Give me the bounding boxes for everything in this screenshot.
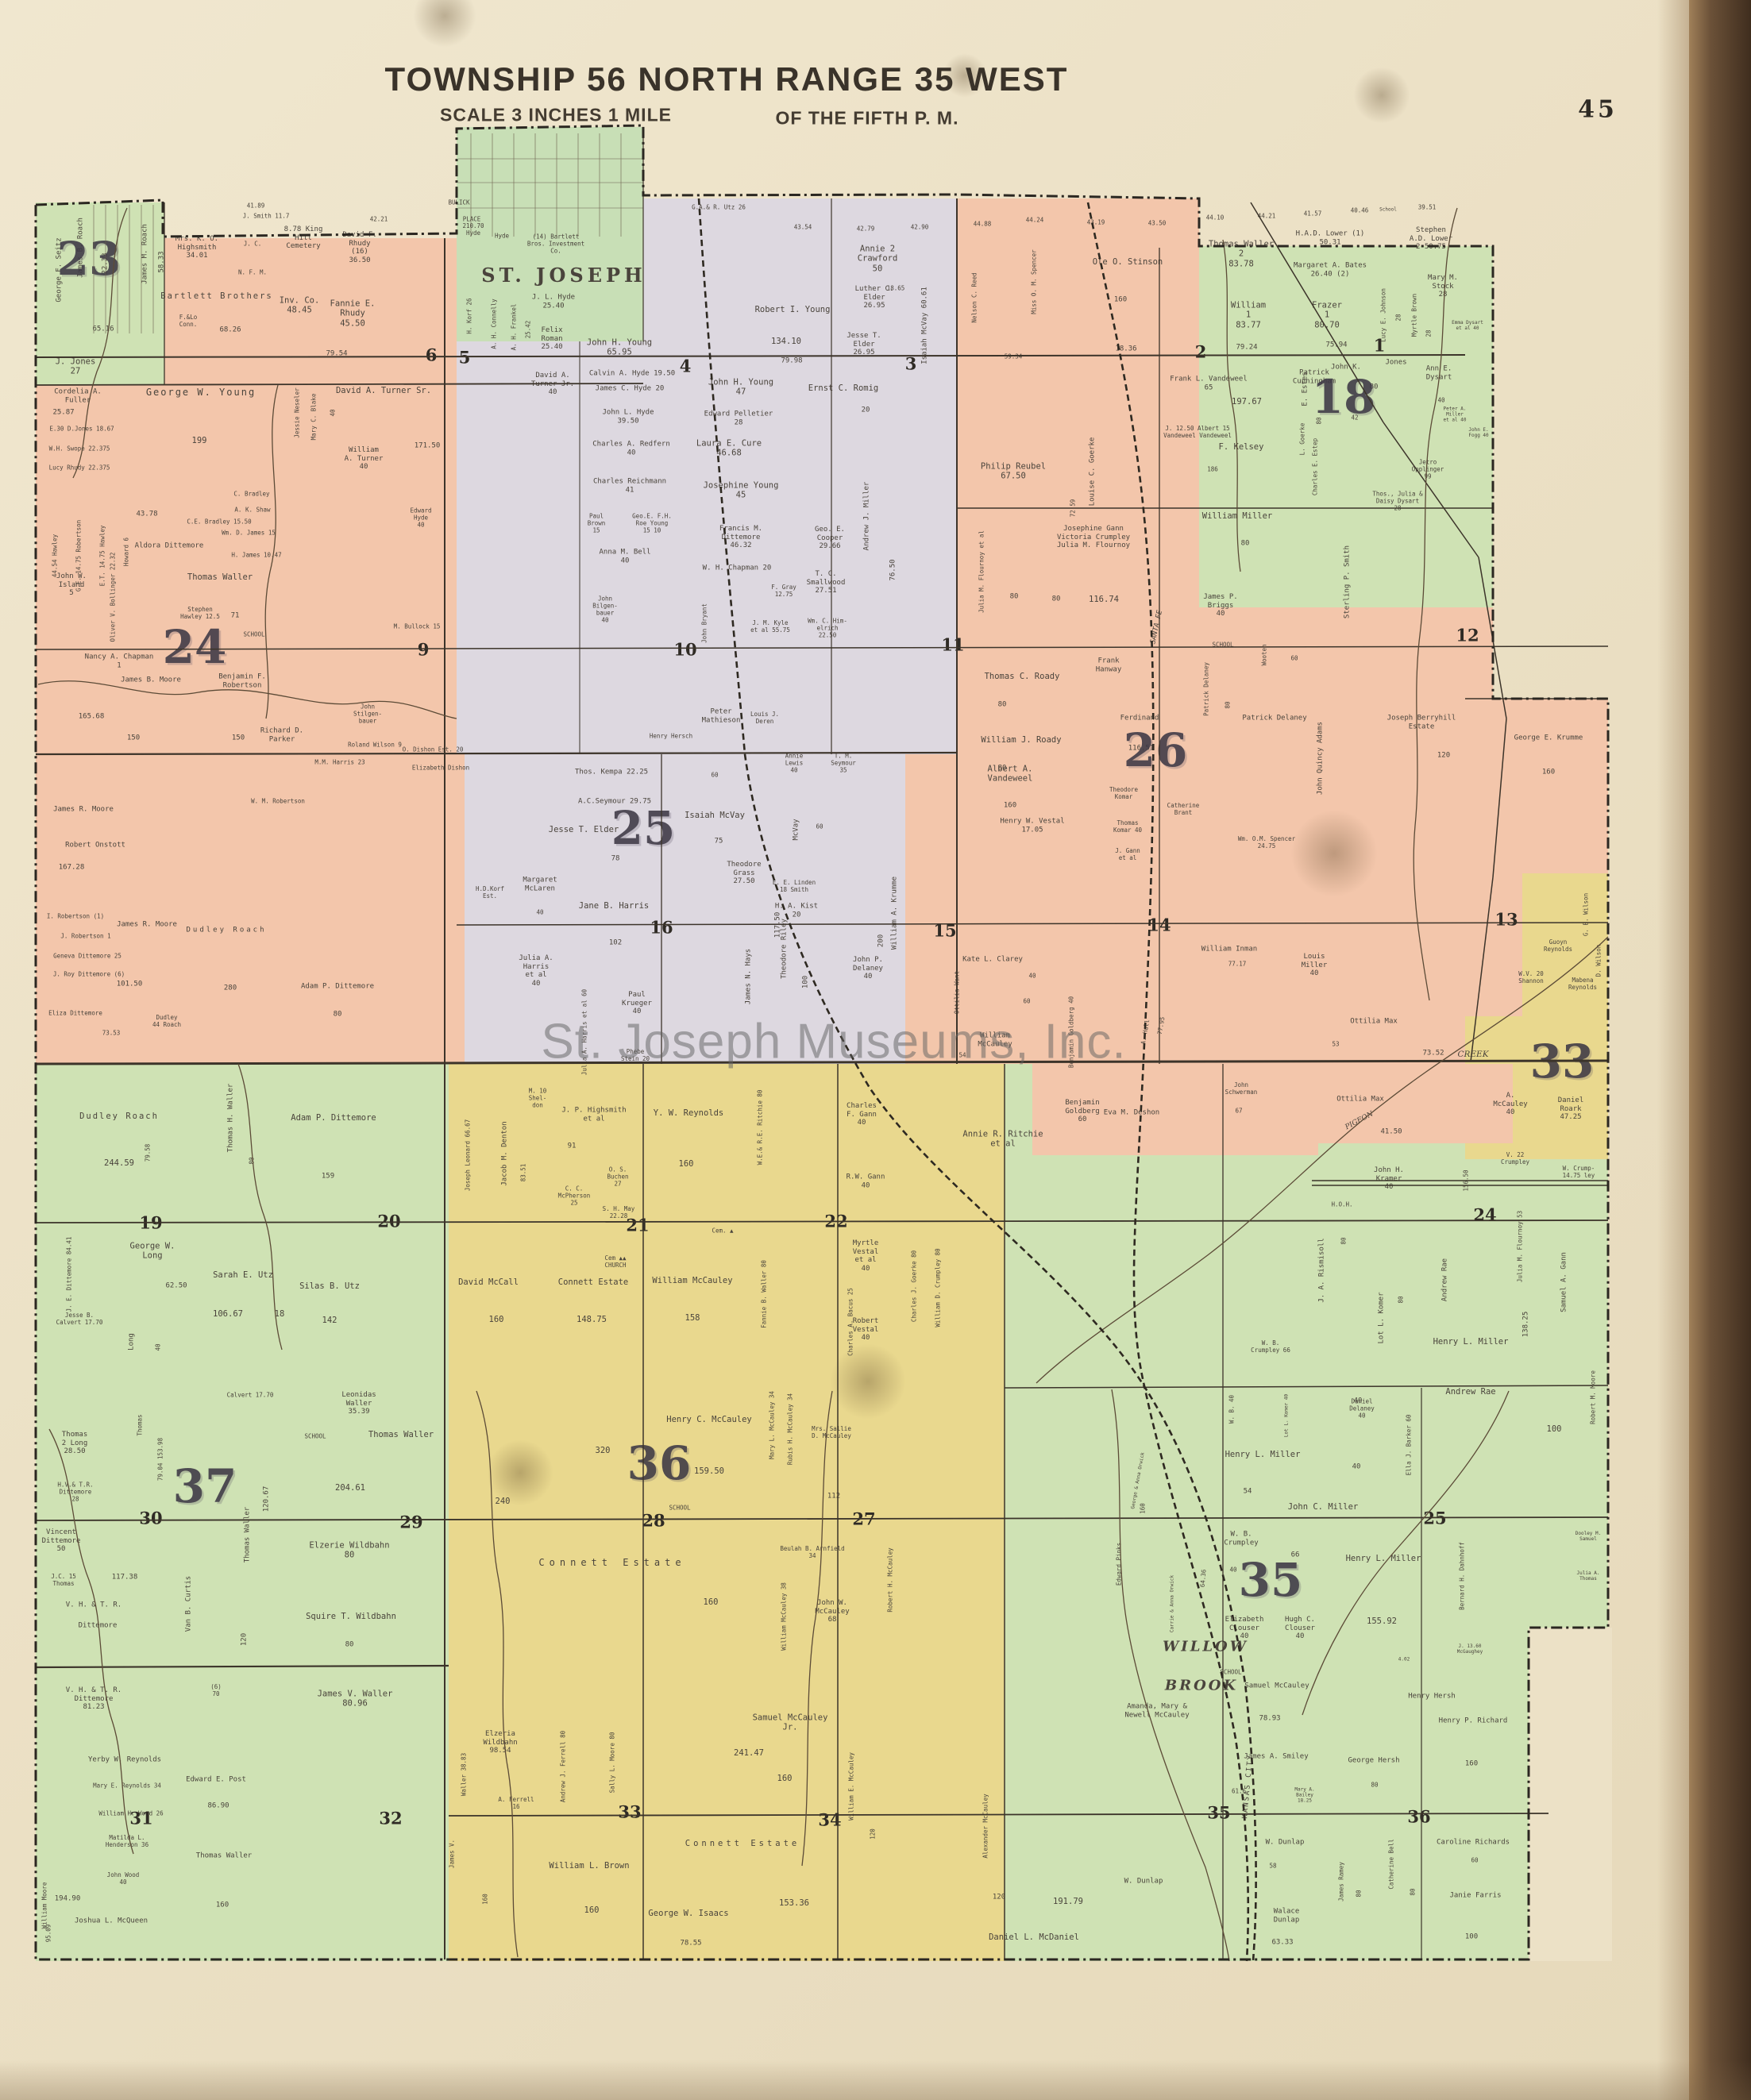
parcel-label: Henry P. Richard (1439, 1717, 1508, 1726)
parcel-label: 160 (1114, 296, 1127, 305)
parcel-label: 59.34 (1005, 354, 1023, 361)
parcel-label: Daniel L. McDaniel (989, 1932, 1079, 1942)
parcel-label: (14) Bartlett Bros. Investment Co. (527, 234, 584, 256)
parcel-label: John P. Delaney 40 (853, 956, 883, 981)
section-corner-number: 12 (1456, 626, 1479, 645)
parcel-label: Charles A. Bacus 25 (848, 1288, 855, 1356)
section-number-large: 24 (163, 620, 227, 674)
parcel-label: 80 (249, 1157, 256, 1164)
parcel-label: Henry L. Miller (1225, 1450, 1301, 1459)
parcel-label: John Schwerman (1225, 1082, 1258, 1096)
parcel-label: Aldora Dittemore (135, 542, 204, 551)
parcel-label: 120 (870, 1828, 877, 1840)
parcel-label: John Quincy Adams (1317, 722, 1325, 795)
parcel-label: H. Korf 26 (467, 298, 474, 333)
parcel-label: Daniel Roark 47.25 (1558, 1096, 1584, 1122)
watermark: St. Joseph Museums, Inc. (541, 1014, 1126, 1070)
parcel-label: 54 (1244, 1488, 1252, 1497)
parcel-label: Henry Hersch (650, 734, 692, 741)
parcel-label: David A. Turner Sr. (336, 386, 431, 395)
parcel-label: J. 13.60 McGaughey (1457, 1643, 1483, 1655)
parcel-label: J. Jones 27 (56, 357, 96, 377)
parcel-label: John Stilgen- bauer (353, 704, 382, 726)
parcel-label: 102 (609, 939, 622, 948)
parcel-label: Emma Dysart et al 40 (1452, 320, 1483, 331)
parcel-label: Roland Wilson 9 (348, 742, 402, 749)
parcel-label: H.O.H. (1331, 1202, 1352, 1209)
parcel-label: J. Robertson 1 (60, 934, 110, 941)
parcel-label: 80 (1371, 1782, 1378, 1790)
section-corner-number: 28 (642, 1511, 665, 1531)
parcel-label: A. Ferrell 16 (498, 1797, 534, 1811)
parcel-label: 101.50 (117, 981, 143, 989)
map-scale-label: SCALE 3 INCHES 1 MILE (440, 105, 672, 126)
parcel-label: John Bryant (702, 603, 709, 643)
parcel-label: Thomas (137, 1414, 145, 1435)
parcel-label: Lucy E. Johnson (1381, 288, 1388, 342)
parcel-label: Geneva Dittemore 25 (53, 954, 121, 961)
page-number: 45 (1578, 96, 1618, 124)
parcel-label: J. M. Kyle et al 55.75 (750, 620, 790, 634)
parcel-label: Louise C. Goerke (1089, 437, 1097, 507)
parcel-label: Caroline Richards (1437, 1839, 1510, 1848)
parcel-label: J. Gann et al (1115, 848, 1140, 862)
parcel-label: Paul Brown 15 (588, 514, 606, 535)
parcel-label: BULICK (448, 200, 469, 207)
parcel-label: 200 (877, 934, 886, 947)
section-corner-number: 24 (1473, 1205, 1496, 1225)
parcel-label: 83.51 (521, 1164, 528, 1182)
parcel-label: 44.88 (974, 222, 992, 229)
section-number-large: 23 (57, 232, 121, 286)
parcel-label: Thomas C. Roady (985, 672, 1060, 681)
parcel-label: Isaiah McVay (685, 811, 745, 820)
parcel-label: Wm. O.M. Spencer 24.75 (1238, 836, 1295, 850)
parcel-label: 79.58 (145, 1144, 152, 1162)
parcel-label: Mrs. K. O. Highsmith 34.01 (175, 235, 218, 260)
parcel-label: 78.93 (1259, 1715, 1280, 1724)
parcel-label: Miss O. M. Spencer (1032, 249, 1039, 314)
parcel-label: 60 (816, 824, 823, 831)
parcel-label: 80 (1356, 1890, 1363, 1897)
parcel-label: 160 (1004, 802, 1016, 811)
section-corner-number: 11 (941, 635, 964, 655)
parcel-label: Ottilia Max (1336, 1096, 1384, 1104)
parcel-label: SCHOOL (1212, 642, 1233, 649)
section-number-large: 33 (1530, 1035, 1595, 1089)
parcel-label: Andrew J. Ferrell 80 (561, 1731, 568, 1802)
parcel-label: 40 (536, 910, 543, 917)
parcel-label: Louis Miller 40 (1302, 953, 1328, 978)
parcel-label: Edward Pelletier 28 (704, 410, 773, 426)
parcel-label: 79.04 153.98 (158, 1438, 165, 1481)
parcel-label: James R. Moore (117, 921, 177, 930)
parcel-label: Theodore Grass 27.50 (727, 861, 761, 886)
parcel-label: 156.50 (1464, 1169, 1471, 1191)
parcel-label: 40 (1352, 1463, 1361, 1472)
parcel-label: Dudley 44 Roach (152, 1015, 181, 1029)
parcel-label: WILLOW (1163, 1638, 1248, 1655)
parcel-label: 44.54 Hawley (52, 534, 60, 577)
parcel-label: Annie R. Ritchie et al (962, 1130, 1043, 1150)
parcel-label: John E. Fogg 40 (1468, 427, 1488, 438)
parcel-label: George W. Isaacs (648, 1909, 728, 1918)
parcel-label: Wm. D. James 15 (222, 530, 276, 538)
parcel-label: J. 12.50 Albert 15 Vandeweel Vandeweel (1163, 426, 1232, 440)
parcel-label: 241.47 (734, 1748, 764, 1758)
parcel-label: C.E. Bradley 15.50 (187, 519, 251, 526)
parcel-label: Julia M. Flournoy et al (979, 530, 986, 613)
parcel-label: 40.46 (1351, 208, 1369, 215)
parcel-label: Nelson C. Reed (972, 272, 979, 322)
parcel-label: Catherine Bell (1389, 1839, 1396, 1889)
parcel-label: 44.21 (1258, 214, 1276, 221)
parcel-label: Elzerie Wildbahn 80 (309, 1541, 389, 1561)
parcel-label: Jane B. Harris (579, 901, 650, 911)
parcel-label: 77.17 (1228, 961, 1247, 969)
parcel-label: 44.24 (1026, 218, 1044, 225)
parcel-label: William L. Brown (549, 1861, 629, 1871)
parcel-label: 63.33 (1271, 1939, 1293, 1948)
parcel-label: 40 (156, 1343, 163, 1351)
parcel-label: 167.28 (59, 864, 85, 873)
parcel-label: Lot L. Komer 40 (1283, 1394, 1289, 1437)
parcel-label: James N. Hays (745, 949, 754, 1004)
parcel-label: T. C. Smallwood 27.51 (807, 570, 846, 595)
section-corner-number: 27 (852, 1509, 875, 1529)
parcel-label: W.V. 20 Shannon (1518, 971, 1544, 985)
parcel-label: Jesse T. Elder (549, 825, 619, 834)
parcel-label: 39.51 (1418, 205, 1437, 212)
parcel-label: Van B. Curtis (185, 1576, 194, 1632)
parcel-label: George E. Krumme (1514, 734, 1583, 743)
parcel-label: Charles A. Redfern 40 (592, 440, 670, 457)
parcel-label: 25.87 (52, 409, 74, 418)
parcel-label: Ottilia Want (955, 971, 962, 1014)
section-corner-number: 15 (933, 921, 956, 941)
parcel-label: 160 (1465, 1760, 1478, 1769)
section-corner-number: 4 (680, 356, 692, 376)
parcel-label: O. Dishon Est. 20 (403, 747, 464, 754)
parcel-label: Henry C. McCauley (666, 1415, 751, 1424)
parcel-label: Richard D. Parker (260, 726, 303, 743)
parcel-label: 199 (192, 436, 207, 445)
parcel-label: Andrew J. Miller (863, 482, 872, 551)
parcel-label: Robert M. Moore (1591, 1370, 1598, 1424)
parcel-label: 73.53 (102, 1031, 121, 1038)
parcel-label: 116.74 (1089, 595, 1119, 604)
parcel-label: 86.90 (207, 1802, 229, 1811)
parcel-label: A. McCauley 40 (1493, 1092, 1527, 1117)
parcel-label: Stephen A.D. Lower 2 50.75 (1410, 226, 1452, 252)
parcel-label: Mary A. Bailey 18.25 (1294, 1786, 1314, 1803)
parcel-label: J. L. Hyde 25.40 (532, 293, 575, 310)
section-corner-number: 22 (824, 1212, 847, 1231)
parcel-label: 40 (1229, 1567, 1236, 1574)
parcel-label: William 1 83.77 (1231, 300, 1266, 329)
parcel-label: 25.42 (526, 321, 533, 339)
parcel-label: 53 (1332, 1042, 1339, 1049)
parcel-label: 100 (802, 976, 811, 988)
section-number-large: 35 (1239, 1553, 1303, 1607)
parcel-label: Wm. C. Him- elrich 22.50 (808, 618, 847, 640)
section-corner-number: 34 (818, 1810, 841, 1830)
parcel-label: Thomas Waller (196, 1852, 252, 1861)
parcel-label: 160 (483, 1894, 490, 1905)
parcel-label: 80 (1010, 593, 1019, 602)
parcel-label: Mary L. McCauley 34 (769, 1391, 777, 1459)
parcel-label: 191.79 (1053, 1897, 1083, 1906)
parcel-label: 60 (1290, 656, 1298, 663)
parcel-label: J. Smith 11.7 (243, 214, 290, 221)
parcel-label: J.C. 15 Thomas (51, 1574, 76, 1588)
parcel-label: John L. Hyde 39.50 (602, 408, 654, 425)
parcel-label: Julia A. Thomas (1577, 1570, 1600, 1582)
parcel-label: Albert A. Vandeweel (988, 765, 1033, 784)
section-corner-number: 16 (650, 918, 673, 938)
parcel-label: Myrtle Brown (1412, 294, 1419, 337)
parcel-label: Benjamin F. Robertson (218, 672, 266, 689)
parcel-label: John H. Young 47 (708, 378, 773, 398)
parcel-label: A. K. Shaw (234, 507, 270, 514)
page-edge-shadow (1657, 0, 1689, 2100)
section-corner-number: 3 (905, 354, 917, 374)
parcel-label: Myrtle Vestal et al 40 (853, 1239, 879, 1273)
map-meridian-label: OF THE FIFTH P. M. (776, 108, 959, 129)
parcel-label: David A. Turner Jr. 40 (531, 372, 574, 397)
parcel-label: Joshua L. McQueen (75, 1917, 148, 1926)
parcel-label: Annie Lewis 40 (785, 753, 804, 775)
parcel-label: Cem. ▲ (712, 1228, 733, 1235)
section-corner-number: 13 (1495, 910, 1518, 930)
parcel-label: Robert H. McCauley (888, 1547, 895, 1612)
parcel-label: 148.75 (577, 1315, 607, 1324)
parcel-label: Walace Dunlap (1274, 1907, 1300, 1924)
parcel-label: BROOK (1165, 1677, 1238, 1693)
parcel-label: H.D.Korf Est. (476, 886, 504, 900)
parcel-label: James M. Roach (141, 224, 150, 284)
parcel-label: 72.59 (1070, 499, 1078, 518)
parcel-label: Charles Reichmann 41 (593, 477, 666, 494)
parcel-label: 160 (1542, 769, 1555, 777)
parcel-label: 58 (1269, 1863, 1276, 1871)
parcel-label: L. Goerke (1300, 423, 1307, 456)
parcel-label: William E. McCauley (849, 1752, 856, 1821)
parcel-label: W. B. Crumpley (1224, 1530, 1258, 1547)
parcel-label: 42.90 (911, 225, 929, 232)
parcel-label: Peter A. Miller et al 40 (1444, 406, 1467, 422)
parcel-label: F. Kelsey (1219, 442, 1264, 452)
parcel-label: 44.10 (1206, 215, 1225, 222)
parcel-label: H.A.D. Lower (1) 50.31 (1296, 229, 1365, 246)
parcel-label: James C. Hyde 20 (596, 385, 665, 394)
section-corner-number: 29 (399, 1512, 422, 1532)
section-corner-number: 21 (626, 1216, 649, 1235)
parcel-label: Jacob M. Denton (501, 1121, 510, 1185)
parcel-label: William Inman (1201, 946, 1257, 954)
parcel-label: V. H. & T. R. (66, 1601, 121, 1610)
parcel-label: Edward Pinks (1117, 1543, 1124, 1586)
parcel-label: W. H. Chapman 20 (703, 564, 772, 573)
parcel-label: 40 (1028, 973, 1036, 981)
parcel-label: David McCall (458, 1277, 519, 1287)
parcel-label: A. H. Frankel (511, 304, 519, 351)
parcel-label: 60 (1023, 999, 1030, 1006)
parcel-label: SCHOOL (1220, 1670, 1241, 1677)
parcel-label: Howard 6 (124, 538, 131, 566)
parcel-label: W.E.& R.E. Ritchie 80 (758, 1090, 765, 1166)
parcel-label: 159 (322, 1173, 334, 1181)
parcel-label: Mrs. Sallie D. McCauley (812, 1426, 851, 1440)
parcel-label: 79.24 (1236, 344, 1257, 353)
parcel-label: James Ramey (1339, 1862, 1346, 1902)
parcel-label: 120 (1437, 752, 1450, 761)
parcel-label: Elzeria Wildbahn 98.54 (483, 1730, 517, 1755)
parcel-label: 78 (611, 855, 620, 864)
section-number-large: 26 (1124, 723, 1188, 777)
parcel-label: Patrick Delaney (1242, 715, 1306, 723)
parcel-label: Elizabeth Clouser 40 (1225, 1616, 1264, 1641)
parcel-label: Henry L. Miller (1346, 1554, 1421, 1563)
parcel-label: G. B. Wilson (1583, 893, 1591, 936)
parcel-label: James P. Briggs 40 (1203, 593, 1237, 618)
parcel-label: Adam P. Dittemore (301, 983, 374, 992)
parcel-label: I. Robertson (1) (47, 914, 104, 921)
section-corner-number: 30 (139, 1509, 162, 1528)
parcel-label: J. E. Dittemore 84.41 (67, 1237, 74, 1312)
parcel-label: Josephine Gann Victoria Crumpley Julia M… (1057, 525, 1130, 550)
parcel-label: Margaret A. Bates 26.40 (2) (1294, 261, 1367, 278)
parcel-label: C. Bradley (233, 491, 269, 499)
parcel-label: 80 (1341, 1237, 1348, 1244)
parcel-label: H. James 10.47 (231, 553, 281, 560)
parcel-label: Catherine Brant (1167, 803, 1200, 817)
parcel-label: W. B. 40 (1229, 1395, 1236, 1424)
section-number-large: 18 (1312, 370, 1376, 424)
parcel-label: 165.68 (79, 713, 105, 722)
map-region-patch (457, 341, 957, 754)
parcel-label: 100 (1465, 1933, 1478, 1942)
parcel-label: Joseph Berryhill Estate (1387, 714, 1456, 730)
parcel-label: Eliza Dittemore (48, 1011, 102, 1018)
parcel-label: 80 (345, 1641, 354, 1650)
parcel-label: CREEK (1457, 1050, 1488, 1059)
parcel-label: Thomas H. Waller (227, 1084, 236, 1153)
parcel-label: Connett Estate (685, 1839, 800, 1848)
parcel-label: E.30 D.Jones 18.67 (49, 426, 114, 433)
parcel-label: Frank L. Vandeweel 65 (1170, 375, 1248, 391)
parcel-label: Oliver V. Bollinger 22.32 (110, 553, 118, 642)
parcel-label: William J. Roady (981, 735, 1061, 745)
parcel-label: Peter Mathieson (702, 707, 741, 724)
parcel-label: O. S. Buchen 27 (607, 1167, 628, 1189)
parcel-label: Dittemore (79, 1622, 118, 1631)
parcel-label: Josephine Young 45 (704, 481, 779, 501)
parcel-label: Waller 38.83 (461, 1753, 469, 1796)
section-corner-number: 14 (1147, 915, 1171, 935)
parcel-label: 42.21 (370, 217, 388, 224)
parcel-label: Ottilia Max (1350, 1018, 1398, 1027)
parcel-label: 18.36 (1115, 345, 1136, 354)
parcel-label: Thomas Waller (368, 1430, 434, 1439)
parcel-label: Thos. Kempa 22.25 (575, 769, 648, 777)
parcel-label: Joseph Leonard 66.67 (465, 1119, 472, 1191)
parcel-label: 150 (232, 734, 245, 743)
parcel-label: 160 (584, 1905, 600, 1915)
parcel-label: F.&Lo Conn. (179, 314, 198, 329)
parcel-label: 20 (862, 407, 870, 415)
parcel-label: 40 (330, 409, 337, 416)
parcel-label: 100 (1547, 1424, 1562, 1434)
parcel-label: John C. Miller (1288, 1502, 1359, 1512)
parcel-label: Sally L. Moore 80 (610, 1732, 617, 1794)
parcel-label: Mary M. Stock 28 (1428, 274, 1458, 299)
map-region-patch (36, 385, 465, 1064)
parcel-label: Eva M. Deshon (1104, 1109, 1159, 1118)
section-number-large: 25 (611, 801, 676, 855)
parcel-label: E.T. 14.75 Hawley (100, 526, 107, 587)
parcel-label: 160 (489, 1315, 504, 1324)
parcel-label: 194.90 (55, 1895, 81, 1904)
parcel-label: Philip Reubel 67.50 (981, 462, 1046, 482)
parcel-label: J. C. (244, 241, 262, 249)
parcel-label: Sterling P. Smith (1344, 545, 1352, 618)
parcel-label: John H. Kramer 40 (1374, 1166, 1404, 1192)
parcel-label: William A. Turner 40 (345, 446, 384, 472)
parcel-label: Louis J. Deren (750, 711, 779, 726)
parcel-label: James R. Moore (53, 806, 114, 815)
parcel-label: Rubis H. McCauley 34 (788, 1393, 795, 1465)
parcel-label: Edward Hyde 40 (410, 508, 431, 530)
parcel-label: Andrew Rae (1441, 1258, 1450, 1301)
parcel-label: Thomas 2 Long 28.50 (62, 1431, 88, 1456)
parcel-label: 120 (993, 1894, 1005, 1902)
parcel-label: 65.16 (92, 326, 114, 334)
parcel-label: Patrick Delaney (1204, 662, 1211, 716)
parcel-label: W. B. Crumpley 66 (1251, 1340, 1290, 1354)
parcel-label: William D. Crumpley 80 (935, 1248, 943, 1327)
parcel-label: 160 (777, 1774, 793, 1783)
section-corner-number: 20 (377, 1212, 400, 1231)
parcel-label: M. Bullock 15 (394, 624, 441, 631)
parcel-label: 79.54 (326, 350, 347, 359)
parcel-label: Thomas Waller 2 83.78 (1209, 239, 1274, 268)
parcel-label: William McCauley (652, 1276, 732, 1285)
parcel-label: 28 (1426, 329, 1433, 337)
parcel-label: Nancy A. Chapman 1 (85, 653, 154, 669)
parcel-label: John W. McCauley 68 (815, 1599, 849, 1624)
section-number-large: 36 (627, 1436, 692, 1490)
parcel-label: William A. Krumme (891, 877, 900, 950)
parcel-label: W. Dunlap (1266, 1839, 1305, 1848)
book-binding-edge (1689, 0, 1751, 2100)
parcel-label: 80 (334, 1011, 342, 1019)
parcel-label: 43.78 (136, 511, 157, 519)
parcel-label: Ann E. Dysart (1426, 364, 1452, 381)
parcel-label: 120.67 (263, 1486, 272, 1512)
parcel-label: Thomas Waller (244, 1507, 253, 1562)
parcel-label: Edward E. Post (186, 1776, 246, 1785)
parcel-label: Charles E. Estep (1313, 438, 1320, 495)
atlas-page: George F. SeitzJames B. Roach22.33James … (0, 0, 1751, 2100)
parcel-label: 41.57 (1304, 211, 1322, 218)
parcel-label: 210.70 Hyde (462, 223, 484, 237)
parcel-label: (6) 70 (210, 1684, 222, 1698)
parcel-label: 78.55 (680, 1940, 701, 1948)
parcel-label: R.W. Gann 40 (847, 1173, 885, 1189)
parcel-label: E. E. Linden 18 Smith (773, 880, 816, 894)
parcel-label: H.V.& T.R. Dittemore 28 (57, 1482, 93, 1504)
